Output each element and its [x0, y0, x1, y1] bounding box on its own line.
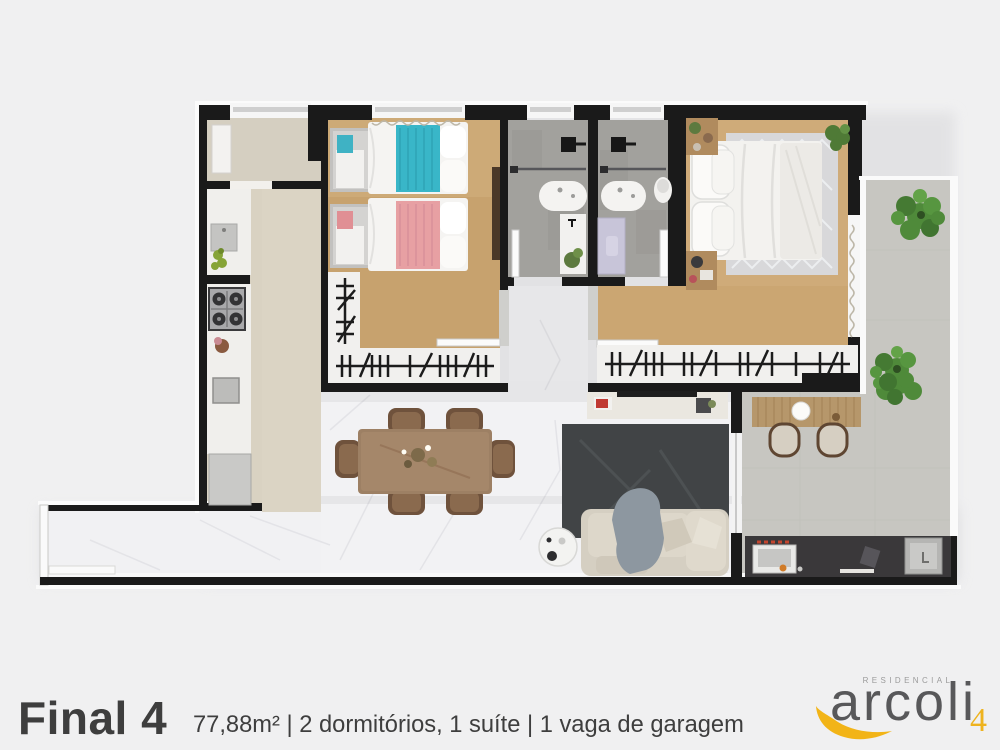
svg-text:4: 4 — [970, 702, 987, 739]
svg-text:arcoli: arcoli — [830, 672, 977, 732]
svg-text:77,88m² | 2 dormitórios, 1 suí: 77,88m² | 2 dormitórios, 1 suíte | 1 vag… — [193, 712, 744, 738]
svg-text:Final 4: Final 4 — [18, 692, 167, 744]
